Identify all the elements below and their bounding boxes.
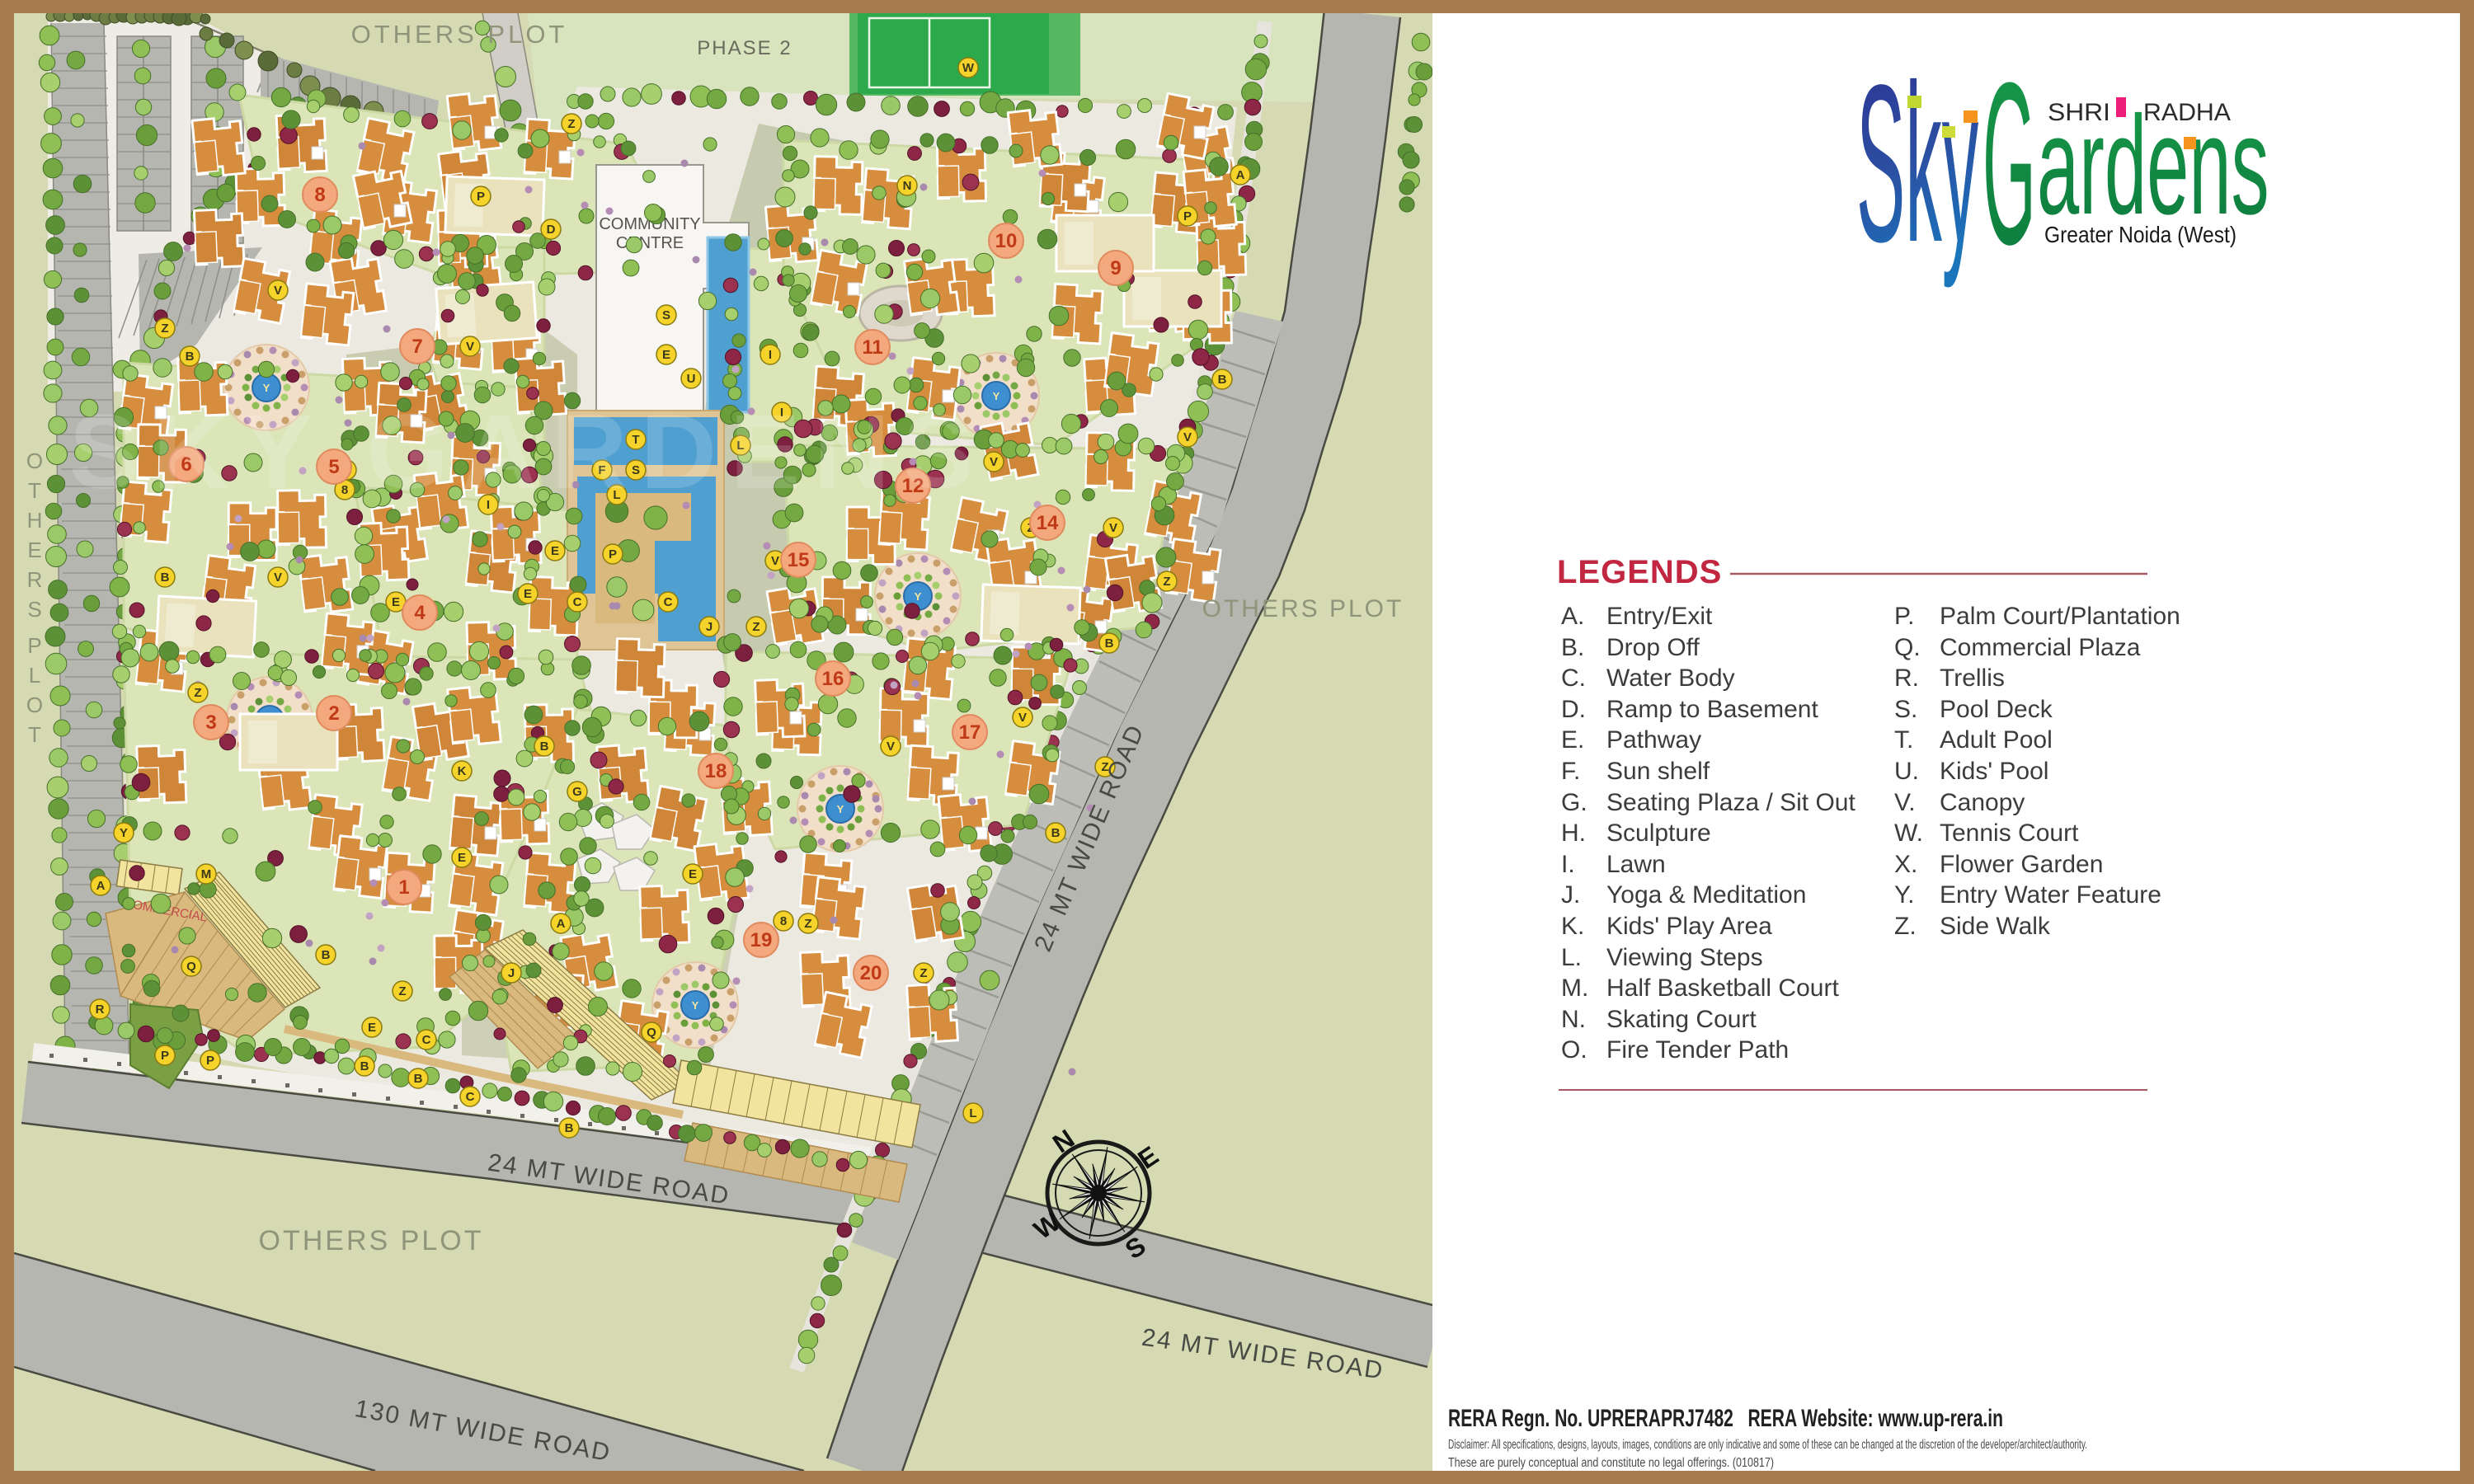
- svg-text:R: R: [96, 1003, 105, 1017]
- svg-text:SHRI: SHRI: [2048, 99, 2110, 126]
- svg-text:2: 2: [328, 702, 339, 725]
- svg-text:J: J: [508, 966, 515, 980]
- svg-text:C: C: [466, 1090, 475, 1104]
- svg-text:P: P: [27, 633, 41, 658]
- svg-text:Viewing Steps: Viewing Steps: [1606, 944, 1763, 971]
- svg-text:Y: Y: [993, 390, 1000, 402]
- svg-text:10: 10: [995, 230, 1018, 252]
- svg-text:S: S: [27, 597, 41, 622]
- svg-text:N.: N.: [1561, 1006, 1586, 1033]
- svg-text:V: V: [1183, 430, 1192, 444]
- svg-text:Greater Noida (West): Greater Noida (West): [2044, 222, 2236, 247]
- svg-text:8: 8: [780, 914, 787, 928]
- svg-text:E: E: [27, 538, 41, 562]
- svg-text:Drop Off: Drop Off: [1606, 634, 1700, 661]
- svg-text:D.: D.: [1561, 696, 1586, 723]
- svg-text:P: P: [609, 547, 617, 561]
- svg-text:Entry Water Feature: Entry Water Feature: [1940, 881, 2161, 909]
- svg-text:15: 15: [788, 549, 810, 571]
- svg-text:O.: O.: [1561, 1036, 1587, 1064]
- svg-text:B: B: [1218, 373, 1227, 387]
- svg-text:V: V: [771, 554, 779, 568]
- svg-text:B.: B.: [1561, 634, 1584, 661]
- svg-text:E: E: [689, 867, 697, 881]
- svg-text:V: V: [1018, 711, 1027, 725]
- svg-text:Q: Q: [186, 960, 196, 974]
- svg-text:V: V: [1109, 521, 1117, 535]
- svg-text:8: 8: [314, 184, 325, 206]
- svg-text:Z: Z: [1163, 575, 1170, 589]
- svg-text:V: V: [274, 284, 282, 298]
- svg-text:PHASE 2: PHASE 2: [697, 37, 792, 59]
- svg-text:E: E: [524, 587, 532, 601]
- svg-text:E: E: [368, 1021, 376, 1035]
- svg-text:Flower Garden: Flower Garden: [1940, 851, 2103, 878]
- svg-text:RADHA: RADHA: [2143, 99, 2231, 126]
- svg-text:18: 18: [705, 760, 727, 782]
- svg-text:Seating Plaza / Sit Out: Seating Plaza / Sit Out: [1606, 789, 1855, 816]
- svg-text:T.: T.: [1894, 726, 1913, 754]
- svg-text:V.: V.: [1894, 789, 1916, 816]
- svg-text:U.: U.: [1894, 758, 1919, 785]
- svg-text:Z: Z: [920, 966, 927, 980]
- svg-text:I: I: [769, 348, 772, 362]
- svg-text:B: B: [322, 948, 331, 962]
- svg-text:A.: A.: [1561, 603, 1584, 630]
- svg-text:A: A: [1236, 168, 1245, 182]
- svg-text:S.: S.: [1894, 696, 1917, 723]
- svg-text:V: V: [466, 340, 474, 354]
- svg-text:T: T: [28, 722, 41, 747]
- svg-text:11: 11: [862, 336, 882, 359]
- svg-text:B: B: [565, 1121, 574, 1135]
- svg-text:Canopy: Canopy: [1940, 789, 2025, 816]
- svg-text:H.: H.: [1561, 819, 1586, 847]
- svg-text:L: L: [29, 663, 40, 688]
- svg-text:P: P: [1183, 209, 1192, 223]
- svg-text:L: L: [969, 1106, 976, 1120]
- svg-text:These are purely conceptual an: These are purely conceptual and constitu…: [1448, 1456, 1774, 1470]
- svg-text:OTHERS PLOT: OTHERS PLOT: [1202, 595, 1404, 622]
- svg-text:P.: P.: [1894, 603, 1914, 630]
- svg-text:Z: Z: [161, 322, 168, 336]
- svg-text:T: T: [28, 478, 41, 503]
- svg-text:Sun shelf: Sun shelf: [1606, 758, 1710, 785]
- svg-text:I.: I.: [1561, 851, 1575, 878]
- svg-text:Q: Q: [647, 1026, 656, 1040]
- svg-text:N: N: [903, 179, 912, 193]
- svg-text:J.: J.: [1561, 881, 1580, 909]
- svg-text:Adult Pool: Adult Pool: [1940, 726, 2053, 754]
- svg-text:Z: Z: [194, 686, 201, 700]
- svg-text:Y: Y: [692, 999, 699, 1012]
- svg-text:R.: R.: [1894, 665, 1919, 692]
- svg-text:C: C: [422, 1033, 431, 1047]
- svg-text:19: 19: [750, 929, 773, 951]
- svg-text:Ramp to Basement: Ramp to Basement: [1606, 696, 1818, 723]
- svg-text:K.: K.: [1561, 913, 1584, 940]
- svg-text:D: D: [547, 223, 556, 237]
- svg-text:Fire Tender Path: Fire Tender Path: [1606, 1036, 1789, 1064]
- svg-text:B: B: [186, 350, 195, 364]
- svg-text:A: A: [96, 879, 106, 893]
- svg-text:4: 4: [414, 602, 426, 624]
- svg-text:E: E: [662, 348, 670, 362]
- svg-text:Commercial Plaza: Commercial Plaza: [1940, 634, 2141, 661]
- svg-text:F.: F.: [1561, 758, 1580, 785]
- svg-text:G: G: [572, 785, 582, 799]
- svg-text:X.: X.: [1894, 851, 1917, 878]
- svg-text:J: J: [706, 620, 713, 634]
- svg-text:17: 17: [959, 721, 981, 744]
- svg-text:P: P: [477, 190, 485, 204]
- svg-text:Y.: Y.: [1894, 881, 1914, 909]
- svg-text:Pathway: Pathway: [1606, 726, 1701, 754]
- svg-text:LEGENDS: LEGENDS: [1557, 554, 1722, 590]
- svg-text:Sculpture: Sculpture: [1606, 819, 1711, 847]
- svg-text:B: B: [414, 1072, 423, 1086]
- svg-text:OTHERS PLOT: OTHERS PLOT: [351, 20, 568, 49]
- svg-text:V: V: [274, 571, 282, 585]
- svg-text:O: O: [26, 448, 43, 473]
- svg-text:B: B: [1105, 636, 1114, 650]
- svg-text:P: P: [206, 1054, 214, 1068]
- svg-text:3: 3: [205, 711, 216, 734]
- svg-text:Lawn: Lawn: [1606, 851, 1666, 878]
- svg-text:Kids' Play Area: Kids' Play Area: [1606, 913, 1772, 940]
- svg-text:OTHERS PLOT: OTHERS PLOT: [259, 1225, 484, 1256]
- svg-text:A: A: [557, 917, 566, 931]
- svg-text:Half Basketball Court: Half Basketball Court: [1606, 974, 1839, 1002]
- svg-text:Z: Z: [752, 620, 760, 634]
- svg-text:Z: Z: [567, 117, 575, 131]
- svg-text:C.: C.: [1561, 665, 1586, 692]
- svg-text:E: E: [392, 595, 400, 609]
- svg-text:Z.: Z.: [1894, 913, 1917, 940]
- svg-text:RERA Regn. No. UPRERAPRJ7482: RERA Regn. No. UPRERAPRJ7482 RERA Websit…: [1448, 1405, 2003, 1432]
- svg-text:14: 14: [1037, 512, 1059, 534]
- svg-text:E: E: [551, 544, 559, 558]
- svg-text:Side Walk: Side Walk: [1940, 913, 2051, 940]
- svg-text:O: O: [26, 693, 43, 717]
- svg-text:E.: E.: [1561, 726, 1584, 754]
- svg-text:K: K: [458, 764, 467, 778]
- svg-text:B: B: [1051, 826, 1061, 840]
- svg-text:E: E: [458, 851, 466, 865]
- svg-text:Pool Deck: Pool Deck: [1940, 696, 2053, 723]
- svg-text:W: W: [962, 61, 975, 75]
- svg-text:20: 20: [860, 962, 882, 984]
- svg-text:Y: Y: [915, 590, 922, 603]
- svg-text:C: C: [664, 595, 673, 609]
- svg-text:Y: Y: [263, 382, 270, 394]
- svg-text:B: B: [161, 571, 170, 585]
- svg-text:H: H: [27, 508, 43, 533]
- svg-text:C: C: [573, 595, 582, 609]
- svg-text:Y: Y: [120, 826, 128, 840]
- svg-text:Z: Z: [804, 917, 811, 931]
- svg-text:Water Body: Water Body: [1606, 665, 1735, 692]
- svg-text:B: B: [360, 1059, 369, 1073]
- svg-text:G: G: [1982, 35, 2036, 293]
- svg-text:Entry/Exit: Entry/Exit: [1606, 603, 1713, 630]
- svg-text:1: 1: [398, 876, 409, 899]
- svg-text:7: 7: [412, 336, 422, 358]
- svg-text:G.: G.: [1561, 789, 1587, 816]
- svg-text:Q.: Q.: [1894, 634, 1921, 661]
- svg-text:B: B: [540, 740, 549, 754]
- svg-text:Tennis Court: Tennis Court: [1940, 819, 2079, 847]
- svg-text:P: P: [161, 1049, 169, 1063]
- svg-text:Trellis: Trellis: [1940, 665, 2005, 692]
- svg-text:9: 9: [1110, 257, 1121, 279]
- svg-text:Palm Court/Plantation: Palm Court/Plantation: [1940, 603, 2180, 630]
- svg-text:R: R: [27, 567, 43, 592]
- svg-text:Z: Z: [398, 984, 406, 998]
- svg-text:Disclaimer: All specifications: Disclaimer: All specifications, designs,…: [1448, 1438, 2087, 1452]
- svg-text:M.: M.: [1561, 974, 1588, 1002]
- svg-text:U: U: [687, 372, 696, 386]
- svg-text:Sky: Sky: [1856, 38, 1978, 289]
- svg-text:Yoga & Meditation: Yoga & Meditation: [1606, 881, 1806, 909]
- svg-text:Kids' Pool: Kids' Pool: [1940, 758, 2048, 785]
- svg-text:V: V: [887, 740, 895, 754]
- svg-text:M: M: [201, 867, 212, 881]
- svg-text:L.: L.: [1561, 944, 1582, 971]
- svg-text:16: 16: [822, 668, 844, 690]
- svg-text:Skating Court: Skating Court: [1606, 1006, 1757, 1033]
- svg-text:V: V: [990, 455, 998, 469]
- svg-text:Y: Y: [837, 803, 844, 815]
- svg-text:S: S: [662, 308, 670, 322]
- svg-text:SKY GARDENS: SKY GARDENS: [69, 393, 987, 511]
- svg-text:W.: W.: [1894, 819, 1923, 847]
